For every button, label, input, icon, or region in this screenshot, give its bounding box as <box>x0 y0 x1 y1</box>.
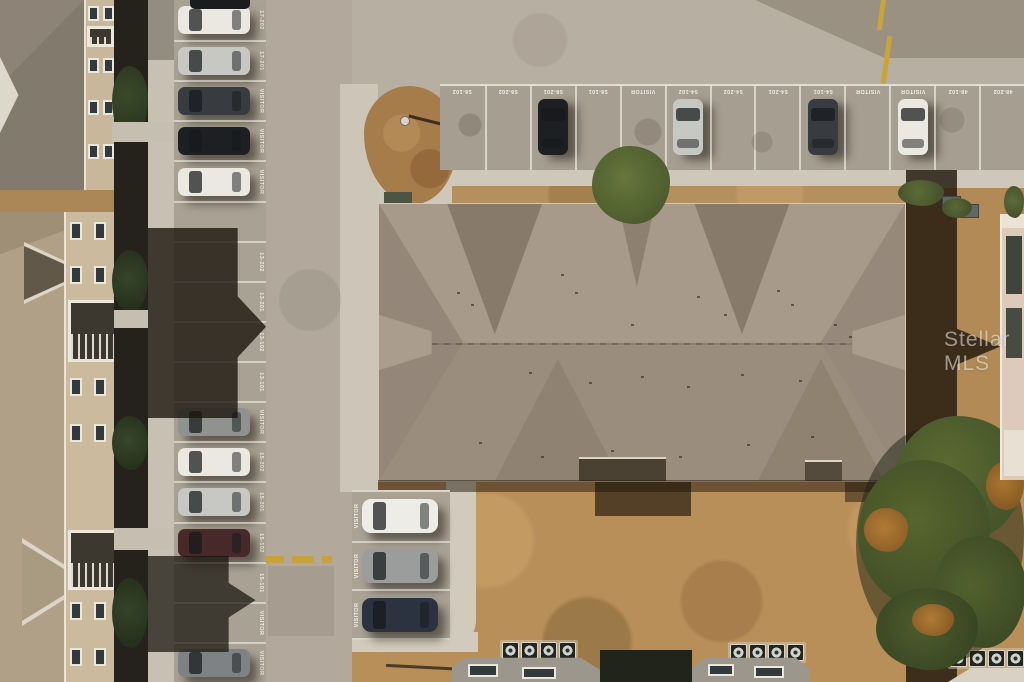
parking-stall-label: VISITOR <box>258 650 264 676</box>
aerial-photo-scene: 17-20217-201VISITORVISITORVISITOR13-2021… <box>0 0 1024 682</box>
parking-stall-label: 54-201 <box>768 88 788 94</box>
parking-stall-label: 58-101 <box>588 88 608 94</box>
window <box>88 100 99 115</box>
parked-car <box>178 6 250 34</box>
parked-car <box>178 488 250 516</box>
building-shadow <box>595 482 691 516</box>
window <box>88 144 99 159</box>
car-rear-glass <box>232 492 241 512</box>
dry-grass-gap <box>0 190 116 212</box>
parking-stall-label: 17-201 <box>258 48 264 74</box>
ac-unit <box>502 642 519 659</box>
parking-stall-label: VISITOR <box>900 88 925 94</box>
parking-stall-label: 58-201 <box>544 88 564 94</box>
car-rear-glass <box>420 503 429 529</box>
autumn-foliage <box>864 508 908 552</box>
parking-stall: 17-201 <box>174 40 266 80</box>
car-windshield <box>189 9 202 31</box>
parked-car <box>178 127 250 155</box>
car-windshield <box>373 502 386 530</box>
parked-car <box>362 499 438 533</box>
window <box>70 266 82 284</box>
parking-stall-label: 48-202 <box>993 88 1013 94</box>
balcony <box>68 300 118 362</box>
ac-unit <box>559 642 576 659</box>
window <box>88 58 99 73</box>
window <box>94 648 106 666</box>
bush <box>898 180 944 206</box>
parking-stall-label: 48-102 <box>948 88 968 94</box>
parked-car <box>362 549 438 583</box>
window <box>103 58 114 73</box>
tree-canopy <box>592 146 670 224</box>
parking-stall-label: VISITOR <box>258 610 264 636</box>
parked-car <box>178 168 250 196</box>
parking-stall: VISITOR <box>352 541 450 590</box>
parking-stall-label: 58-102 <box>453 88 473 94</box>
balcony <box>68 530 118 590</box>
main-building-roof <box>378 203 906 482</box>
window <box>70 378 82 396</box>
car-windshield <box>189 171 202 193</box>
parking-stall: VISITOR <box>174 120 266 160</box>
car-rear-glass <box>542 139 564 148</box>
parked-car <box>178 87 250 115</box>
parked-car <box>178 649 250 677</box>
car-windshield <box>189 451 202 473</box>
parking-stall-label: VISITOR <box>258 128 264 154</box>
car-rear-glass <box>812 139 834 148</box>
bush <box>942 198 972 218</box>
autumn-foliage <box>912 604 954 636</box>
car-rear-glass <box>232 452 241 472</box>
car-rear-glass <box>232 131 241 151</box>
parking-stall-label: VISITOR <box>258 409 264 435</box>
car-windshield <box>373 601 386 629</box>
sidewalk-curved <box>446 478 476 650</box>
window <box>70 424 82 442</box>
building-roof <box>0 0 84 190</box>
shadow-gap <box>600 650 692 682</box>
speed-bump-yellow-marking <box>262 556 332 563</box>
window <box>88 6 99 21</box>
car-windshield <box>676 108 700 121</box>
car-rear-glass <box>420 602 429 628</box>
car-windshield <box>189 532 202 554</box>
car-rear-glass <box>232 10 241 30</box>
railing <box>1004 430 1024 476</box>
top-parking-row: 58-10258-20258-20158-101VISITOR54-10254-… <box>440 84 1024 170</box>
parked-car <box>898 99 928 155</box>
parking-stall-label: VISITOR <box>354 602 360 628</box>
dark-pavement-patch <box>700 0 1024 58</box>
parking-stall-label: VISITOR <box>855 88 880 94</box>
parking-stall-label: 54-102 <box>678 88 698 94</box>
parking-stall-label: 54-202 <box>723 88 743 94</box>
parking-stall-label: 15-101 <box>258 570 264 596</box>
parking-stall: VISITOR <box>352 492 450 541</box>
roof-ridge <box>432 343 853 345</box>
parked-car <box>673 99 703 155</box>
bush <box>1004 186 1024 218</box>
parking-stall-label: 13-201 <box>258 289 264 315</box>
window <box>70 648 82 666</box>
window <box>94 378 106 396</box>
car-windshield <box>373 552 386 580</box>
visitor-parking: VISITORVISITORVISITOR <box>352 490 450 640</box>
watermark: Stellar MLS <box>944 328 1024 376</box>
parking-stall-label: 58-202 <box>499 88 519 94</box>
parking-stall-label: 13-101 <box>258 369 264 395</box>
parking-stall-label: 17-202 <box>258 7 264 33</box>
parking-stall-label: 15-102 <box>258 530 264 556</box>
parking-stall: VISITOR <box>174 160 266 200</box>
car-windshield <box>541 108 565 121</box>
parking-stall: 54-202 <box>710 86 755 170</box>
window <box>94 424 106 442</box>
bush <box>112 250 148 312</box>
parking-stall-label: 13-202 <box>258 249 264 275</box>
skylight <box>754 666 784 678</box>
parking-stall: 15-102 <box>174 522 266 562</box>
parking-stall: 48-202 <box>979 86 1024 170</box>
parked-car <box>178 448 250 476</box>
parked-car <box>362 598 438 632</box>
parking-stall: 15-201 <box>174 481 266 521</box>
parking-stall: VISITOR <box>889 86 934 170</box>
skylight <box>708 664 734 676</box>
parking-stall-label: 15-202 <box>258 449 264 475</box>
car-rear-glass <box>232 91 241 111</box>
parking-stall: 54-102 <box>665 86 710 170</box>
parking-stall: VISITOR <box>352 589 450 638</box>
parking-stall: VISITOR <box>844 86 889 170</box>
car-rear-glass <box>420 553 429 579</box>
parked-car-partial <box>190 0 250 9</box>
roof-notch <box>805 460 842 481</box>
car-windshield <box>189 491 202 513</box>
window <box>70 602 82 620</box>
parking-stall: VISITOR <box>174 80 266 120</box>
parking-stall: 15-202 <box>174 441 266 481</box>
car-rear-glass <box>902 139 924 148</box>
window <box>103 144 114 159</box>
parking-stall-label: VISITOR <box>258 88 264 114</box>
lamp-head <box>400 116 410 126</box>
parking-stall: 58-102 <box>440 86 485 170</box>
roof-vents <box>379 204 382 206</box>
window <box>94 266 106 284</box>
balcony <box>87 26 114 47</box>
parking-stall-label: 54-101 <box>813 88 833 94</box>
walkway <box>114 528 174 550</box>
parking-stall-label: 15-201 <box>258 489 264 515</box>
skylight <box>522 667 556 679</box>
car-rear-glass <box>677 139 699 148</box>
parked-car <box>178 529 250 557</box>
parked-car <box>178 47 250 75</box>
ac-unit <box>521 642 538 659</box>
parking-stall: 54-201 <box>754 86 799 170</box>
street-repaved-patch <box>268 566 334 636</box>
window <box>103 6 114 21</box>
parking-stall: 58-201 <box>530 86 575 170</box>
ac-unit <box>1007 650 1024 667</box>
ac-unit <box>540 642 557 659</box>
car-windshield <box>189 130 202 152</box>
parking-stall: 58-202 <box>485 86 530 170</box>
window <box>70 222 82 240</box>
parking-stall-label: VISITOR <box>354 503 360 529</box>
car-rear-glass <box>232 653 241 673</box>
skylight <box>468 664 498 677</box>
bush <box>112 578 148 648</box>
roof-notch <box>579 457 666 481</box>
car-rear-glass <box>232 172 241 192</box>
ac-unit <box>988 650 1005 667</box>
car-windshield <box>901 108 925 121</box>
car-rear-glass <box>232 51 241 71</box>
parked-car <box>538 99 568 155</box>
window <box>94 222 106 240</box>
car-rear-glass <box>232 533 241 553</box>
parking-stall: 54-101 <box>799 86 844 170</box>
parked-car <box>808 99 838 155</box>
car-windshield <box>189 90 202 112</box>
sidewalk-shadow <box>148 0 174 60</box>
car-windshield <box>189 50 202 72</box>
parking-stall-label: VISITOR <box>354 553 360 579</box>
car-windshield <box>189 652 202 674</box>
parking-stall-label: VISITOR <box>258 169 264 195</box>
bush <box>112 416 148 470</box>
solar-panel <box>1006 236 1022 294</box>
car-windshield <box>811 108 835 121</box>
grass-strip <box>452 186 906 204</box>
parking-stall-label: VISITOR <box>631 88 656 94</box>
parking-stall: 48-102 <box>934 86 979 170</box>
window <box>94 602 106 620</box>
walkway <box>112 122 174 142</box>
